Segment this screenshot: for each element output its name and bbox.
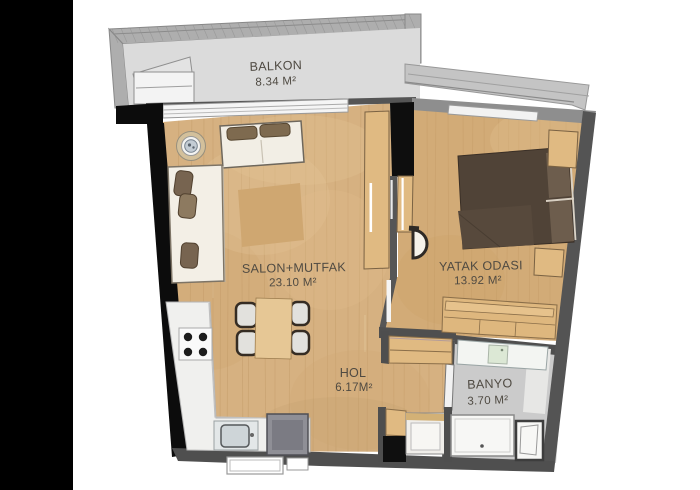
svg-text:BALKON: BALKON bbox=[249, 58, 302, 74]
svg-text:23.10 M²: 23.10 M² bbox=[269, 277, 317, 290]
svg-text:BANYO: BANYO bbox=[467, 376, 513, 392]
svg-text:SALON+MUTFAK: SALON+MUTFAK bbox=[242, 260, 347, 276]
svg-text:HOL: HOL bbox=[340, 366, 367, 380]
svg-text:13.92 M²: 13.92 M² bbox=[454, 275, 502, 288]
svg-text:YATAK ODASI: YATAK ODASI bbox=[439, 258, 523, 273]
svg-text:6.17M²: 6.17M² bbox=[335, 382, 373, 394]
svg-text:3.70 M²: 3.70 M² bbox=[467, 394, 508, 407]
svg-text:8.34 M²: 8.34 M² bbox=[255, 75, 296, 88]
